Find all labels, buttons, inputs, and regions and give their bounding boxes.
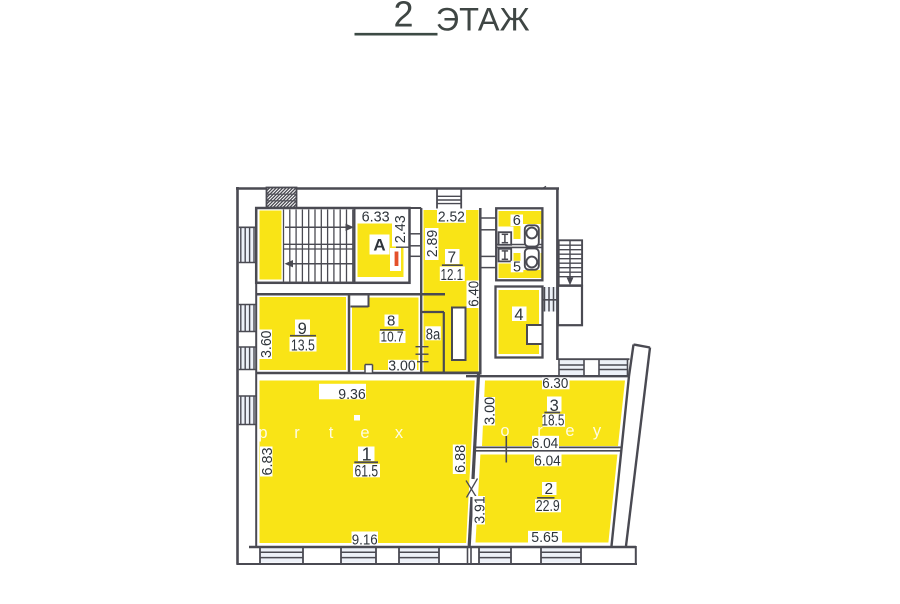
svg-text:A: A (373, 236, 385, 255)
svg-text:9.36: 9.36 (338, 387, 366, 403)
svg-text:3.60: 3.60 (259, 330, 275, 358)
svg-text:2.89: 2.89 (425, 230, 441, 258)
svg-text:6.83: 6.83 (260, 448, 276, 476)
svg-text:r: r (294, 424, 300, 442)
svg-text:6: 6 (513, 213, 521, 229)
svg-text:6.04: 6.04 (534, 453, 561, 469)
svg-text:r: r (537, 422, 543, 440)
svg-text:12.1: 12.1 (441, 267, 464, 284)
svg-text:18.5: 18.5 (541, 413, 564, 430)
svg-text:61.5: 61.5 (355, 462, 379, 480)
svg-text:ЭТАЖ: ЭТАЖ (436, 2, 530, 38)
svg-text:p: p (258, 424, 267, 442)
svg-text:2.43: 2.43 (393, 215, 409, 243)
svg-text:1: 1 (362, 444, 372, 464)
svg-text:6.04: 6.04 (532, 436, 559, 452)
svg-text:6.30: 6.30 (542, 376, 568, 392)
svg-text:e: e (360, 424, 369, 442)
svg-text:2.52: 2.52 (438, 210, 465, 226)
svg-text:3.00: 3.00 (388, 358, 416, 374)
svg-text:y: y (593, 422, 602, 440)
svg-text:10.7: 10.7 (381, 329, 404, 346)
svg-text:6.88: 6.88 (453, 445, 469, 473)
svg-text:2: 2 (544, 481, 553, 498)
svg-text:4: 4 (514, 306, 523, 324)
svg-text:6.33: 6.33 (362, 210, 390, 226)
svg-text:o: o (500, 422, 509, 440)
svg-text:e: e (565, 422, 574, 440)
svg-text:8a: 8a (426, 326, 441, 343)
svg-text:3.91: 3.91 (473, 496, 489, 524)
svg-text:t: t (329, 424, 334, 442)
svg-text:13.5: 13.5 (291, 337, 315, 354)
svg-text:6.40: 6.40 (466, 281, 482, 307)
svg-text:22.9: 22.9 (536, 498, 560, 515)
svg-text:5.65: 5.65 (531, 530, 559, 546)
svg-text:3.00: 3.00 (483, 397, 499, 425)
svg-text:9.16: 9.16 (352, 532, 378, 548)
svg-text:7: 7 (447, 249, 456, 266)
svg-text:5: 5 (513, 259, 521, 275)
svg-text:8: 8 (387, 313, 395, 330)
svg-text:x: x (395, 424, 404, 442)
svg-text:2: 2 (393, 0, 413, 35)
